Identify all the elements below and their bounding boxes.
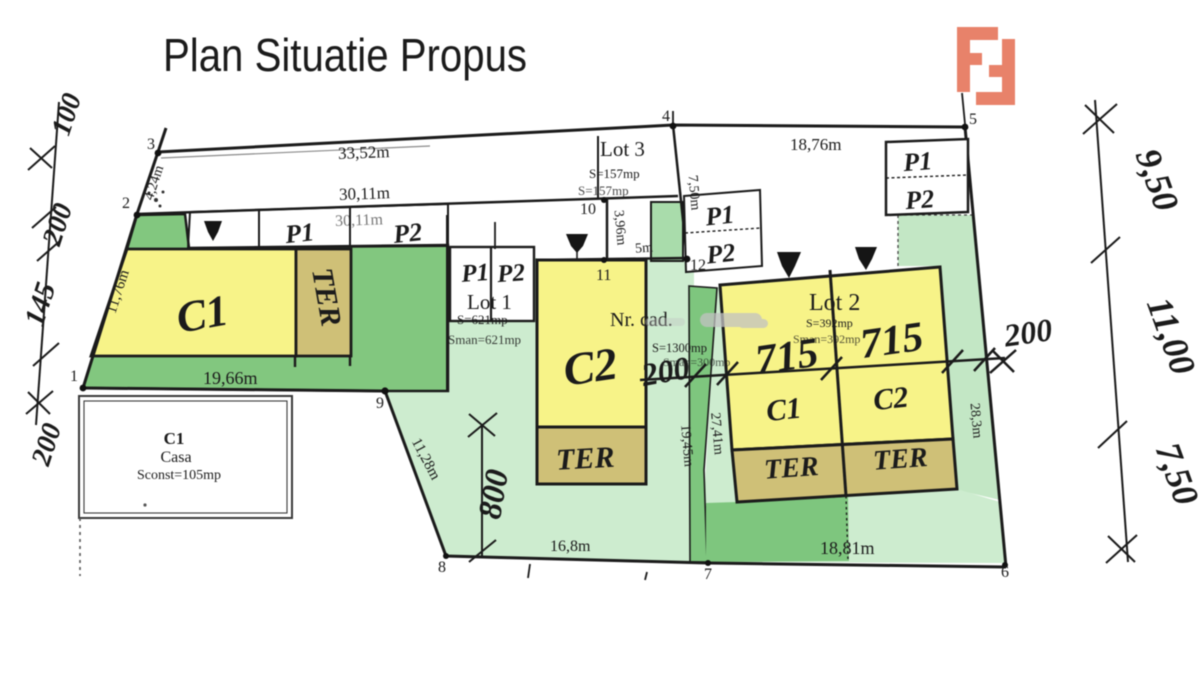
svg-text:TER: TER xyxy=(763,451,819,486)
svg-text:C1: C1 xyxy=(765,392,803,428)
svg-text:Casa: Casa xyxy=(160,449,191,466)
svg-text:P2: P2 xyxy=(704,238,737,270)
svg-text:7: 7 xyxy=(704,566,712,583)
svg-text:19,66m: 19,66m xyxy=(203,368,258,388)
svg-text:C1: C1 xyxy=(173,286,232,343)
svg-text:3: 3 xyxy=(147,136,155,153)
svg-text:C1: C1 xyxy=(164,429,185,448)
svg-text:P1: P1 xyxy=(459,259,490,288)
svg-text:Lot 1: Lot 1 xyxy=(467,290,512,314)
svg-text:28,3m: 28,3m xyxy=(966,402,984,439)
svg-text:P1: P1 xyxy=(703,200,736,232)
svg-text:715: 715 xyxy=(752,330,821,384)
svg-text:P2: P2 xyxy=(391,217,424,249)
svg-text:S=157mp: S=157mp xyxy=(578,183,629,198)
svg-text:200: 200 xyxy=(1001,311,1055,353)
svg-text:6: 6 xyxy=(1001,564,1009,581)
svg-text:12: 12 xyxy=(690,257,706,274)
svg-text:30,11m: 30,11m xyxy=(335,211,384,230)
svg-text:4: 4 xyxy=(662,108,670,125)
svg-text:Sman=621mp: Sman=621mp xyxy=(448,332,521,347)
svg-text:Lot 2: Lot 2 xyxy=(809,290,860,316)
svg-text:16,8m: 16,8m xyxy=(550,538,591,555)
svg-text:S=392mp: S=392mp xyxy=(806,316,853,330)
svg-text:S=157mp: S=157mp xyxy=(589,166,640,181)
svg-text:P1: P1 xyxy=(283,217,316,249)
svg-text:30,11m: 30,11m xyxy=(339,183,390,204)
svg-text:8: 8 xyxy=(438,559,446,576)
svg-text:10: 10 xyxy=(580,201,596,218)
svg-text:TER: TER xyxy=(872,442,928,477)
svg-text:Plan Situatie Propus: Plan Situatie Propus xyxy=(163,29,527,81)
svg-text:5m: 5m xyxy=(635,241,654,257)
svg-text:3,96m: 3,96m xyxy=(610,209,628,246)
svg-text:P2: P2 xyxy=(903,184,935,215)
svg-text:S=621mp: S=621mp xyxy=(457,312,508,327)
svg-text:11: 11 xyxy=(596,267,611,284)
svg-text:Sconst=105mp: Sconst=105mp xyxy=(137,468,221,483)
svg-text:2: 2 xyxy=(122,195,130,212)
svg-text:18,81m: 18,81m xyxy=(820,538,875,558)
svg-text:5: 5 xyxy=(969,111,977,128)
svg-text:P2: P2 xyxy=(495,259,526,288)
svg-text:715: 715 xyxy=(857,314,926,368)
svg-text:C2: C2 xyxy=(560,337,620,395)
svg-text:TER: TER xyxy=(555,441,615,477)
svg-text:P1: P1 xyxy=(901,146,933,177)
svg-text:Lot 3: Lot 3 xyxy=(600,137,645,161)
svg-text:7,50m: 7,50m xyxy=(684,174,702,211)
svg-text:18,76m: 18,76m xyxy=(790,135,841,154)
svg-text:C2: C2 xyxy=(872,381,910,417)
svg-text:9: 9 xyxy=(376,395,384,412)
svg-text:33,52m: 33,52m xyxy=(338,142,390,163)
svg-text:1: 1 xyxy=(70,368,78,385)
